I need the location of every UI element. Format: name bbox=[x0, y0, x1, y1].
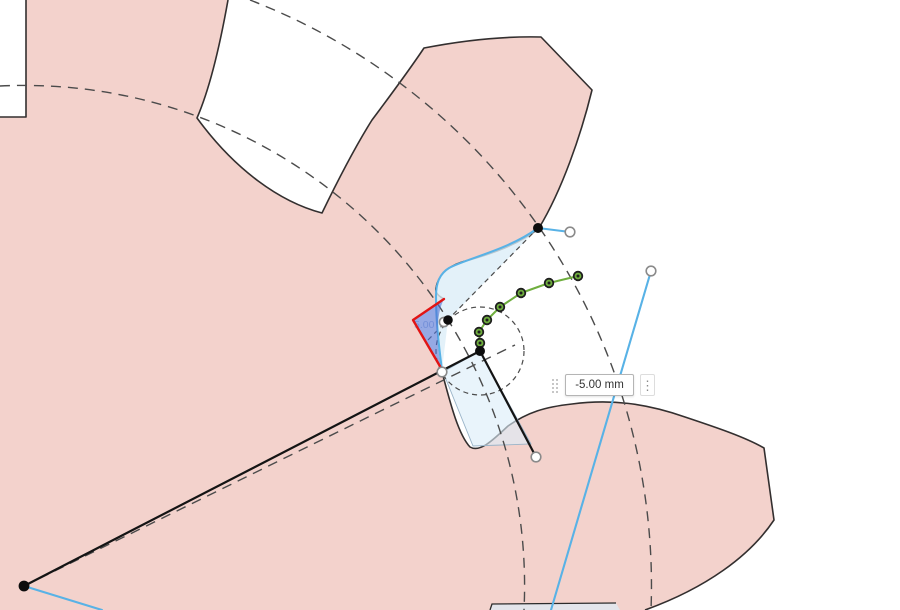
spline-control-point[interactable] bbox=[474, 327, 484, 337]
vertical-ellipsis-icon: ⋮ bbox=[641, 379, 654, 392]
endpoint-circle[interactable] bbox=[565, 227, 575, 237]
endpoint-circle[interactable] bbox=[531, 452, 541, 462]
endpoint-circle[interactable] bbox=[646, 266, 656, 276]
dimension-input[interactable]: -5.00 mm bbox=[565, 374, 634, 396]
gear-body-region[interactable] bbox=[0, 0, 774, 610]
dimension-value[interactable]: -5.00 mm bbox=[575, 379, 624, 391]
dimension-options-button[interactable]: ⋮ bbox=[640, 374, 655, 396]
spline-control-points[interactable] bbox=[474, 271, 583, 348]
sketch-point[interactable] bbox=[533, 223, 543, 233]
sketch-canvas[interactable]: 5.00 bbox=[0, 0, 900, 610]
spline-control-point[interactable] bbox=[495, 302, 505, 312]
spline-control-point[interactable] bbox=[516, 288, 526, 298]
sketch-point[interactable] bbox=[443, 315, 453, 325]
sketch-point[interactable] bbox=[475, 346, 485, 356]
spline-control-polyline[interactable] bbox=[479, 276, 578, 343]
spline-control-point[interactable] bbox=[544, 278, 554, 288]
spline-control-point[interactable] bbox=[482, 315, 492, 325]
drag-grip-icon[interactable] bbox=[550, 377, 558, 394]
endpoint-circle[interactable] bbox=[437, 367, 447, 377]
spline-control-point[interactable] bbox=[573, 271, 583, 281]
sketch-point[interactable] bbox=[19, 581, 30, 592]
